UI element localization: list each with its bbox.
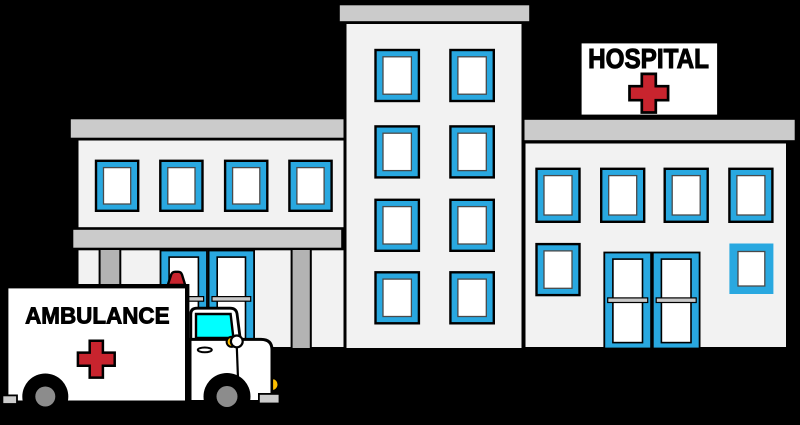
svg-text:AMBULANCE: AMBULANCE [25, 302, 169, 328]
svg-text:HOSPITAL: HOSPITAL [588, 42, 709, 74]
